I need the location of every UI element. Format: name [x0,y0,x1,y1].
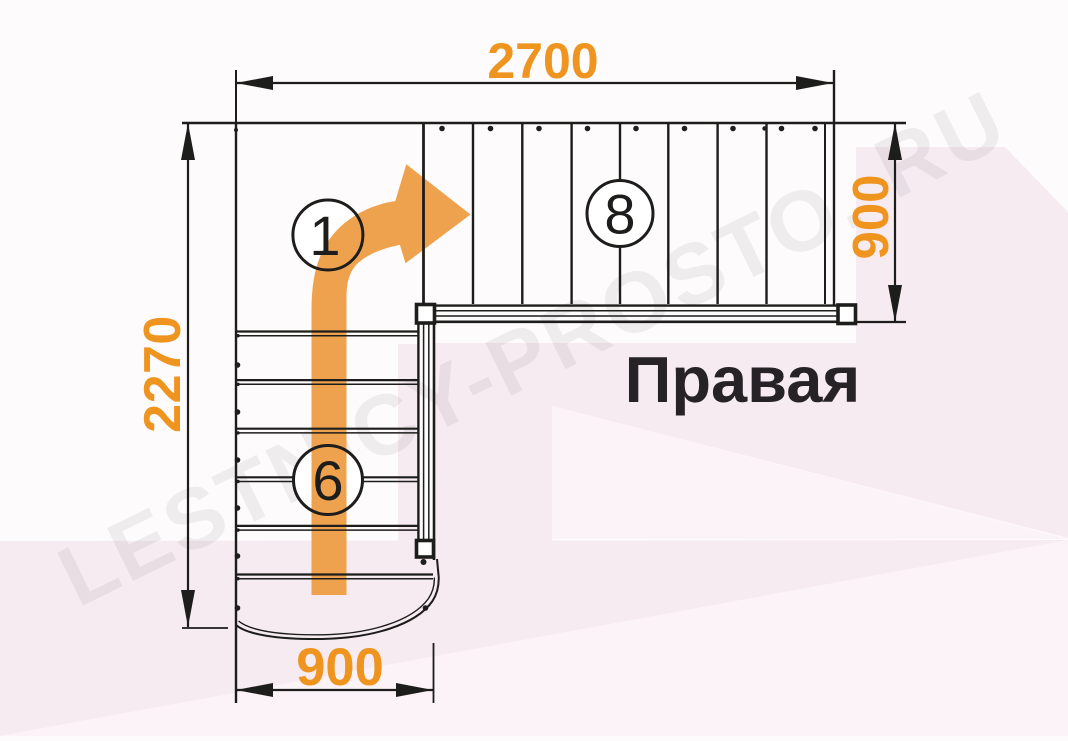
svg-text:900: 900 [842,174,899,259]
svg-text:900: 900 [296,638,384,697]
svg-text:1: 1 [309,204,340,267]
svg-text:8: 8 [604,183,635,246]
svg-text:6: 6 [312,449,343,512]
svg-text:2700: 2700 [487,33,598,89]
svg-text:2270: 2270 [134,315,192,433]
svg-text:Правая: Правая [625,343,861,416]
